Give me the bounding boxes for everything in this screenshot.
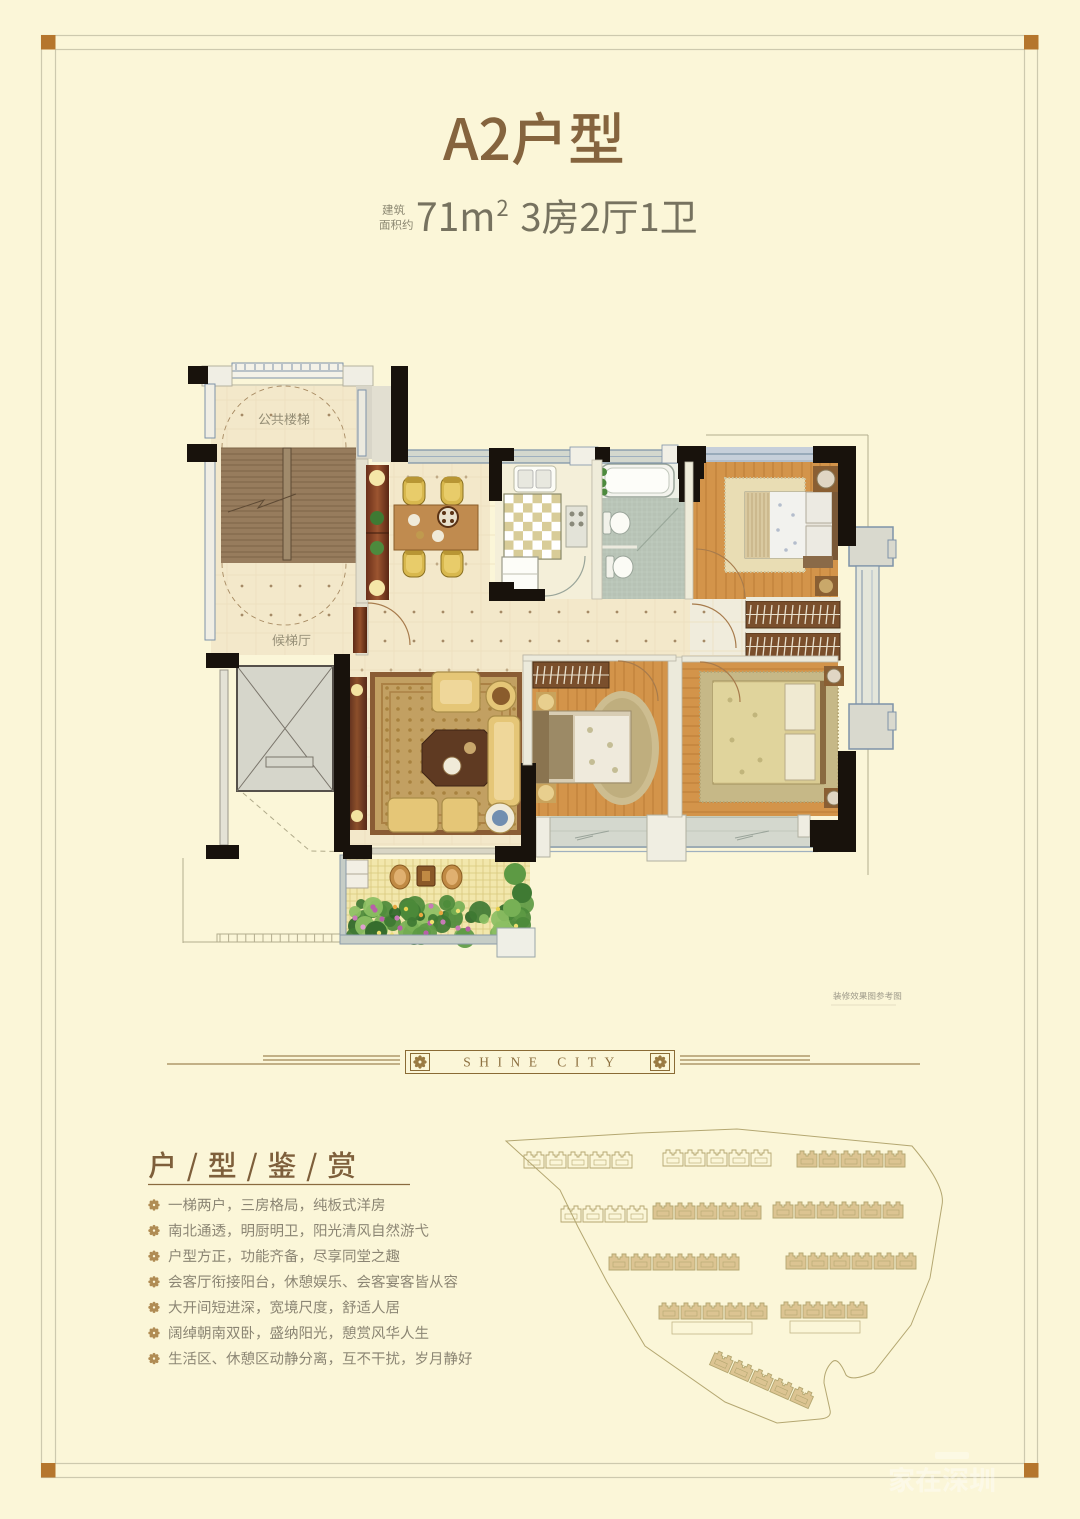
svg-text:SHINE CITY: SHINE CITY [463, 1055, 623, 1070]
